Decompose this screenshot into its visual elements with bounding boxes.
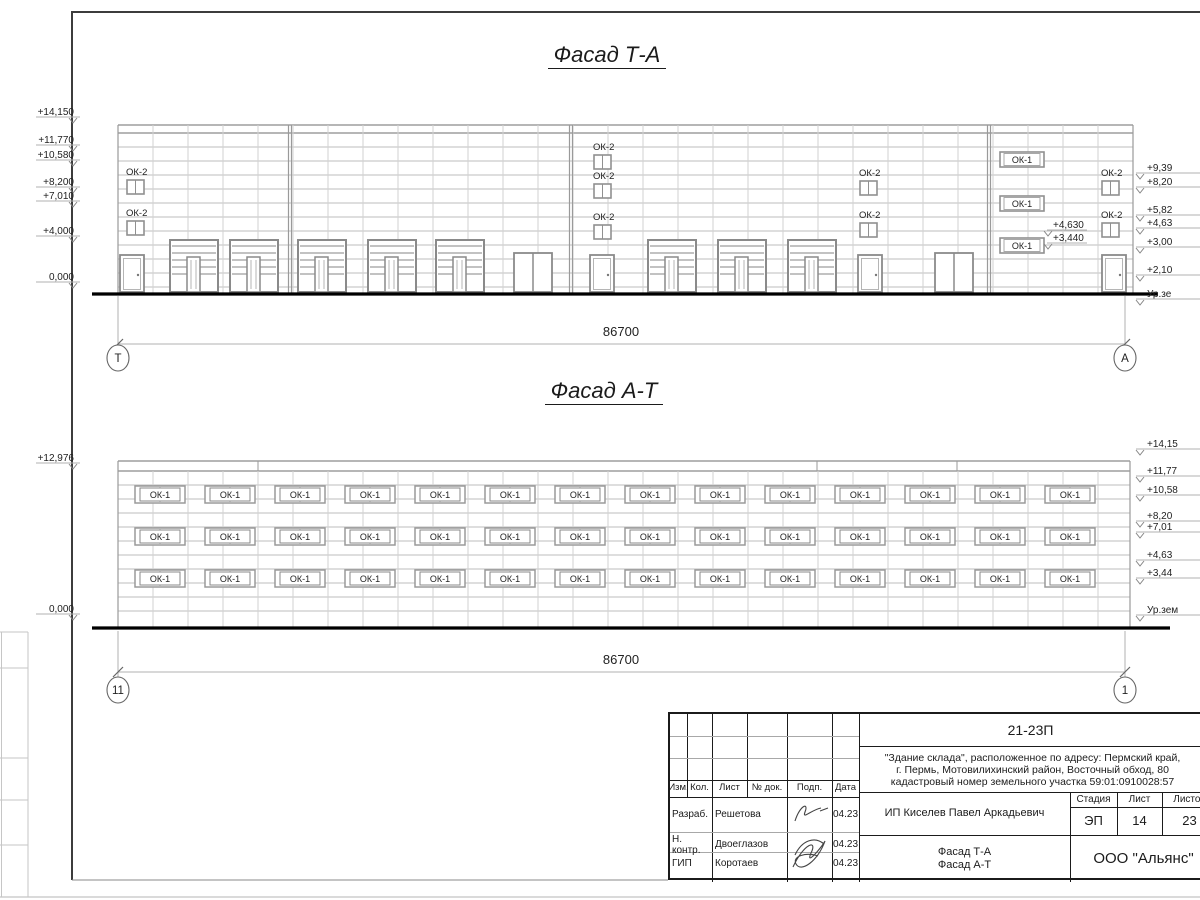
- tb-line: [859, 835, 1200, 836]
- svg-text:ОК-1: ОК-1: [290, 532, 310, 542]
- svg-text:ОК-1: ОК-1: [920, 574, 940, 584]
- svg-text:ОК-1: ОК-1: [290, 490, 310, 500]
- svg-text:ОК-1: ОК-1: [850, 490, 870, 500]
- title-block: 21-23П "Здание склада", расположенное по…: [668, 712, 1200, 880]
- window-ok1: ОК-1: [345, 570, 395, 587]
- svg-text:ОК-1: ОК-1: [640, 532, 660, 542]
- svg-text:0,000: 0,000: [49, 272, 74, 283]
- tb-header-podp: Подп.: [787, 781, 832, 796]
- tb-line: [712, 714, 713, 882]
- svg-text:ОК-1: ОК-1: [710, 532, 730, 542]
- svg-text:ОК-1: ОК-1: [500, 490, 520, 500]
- svg-text:ОК-1: ОК-1: [360, 490, 380, 500]
- tb-sheet-name-line2: Фасад А-Т: [938, 859, 991, 872]
- svg-text:Ур.зем: Ур.зем: [1147, 605, 1178, 616]
- tb-role-3: ГИП: [672, 857, 712, 871]
- window-ok1: ОК-1: [1000, 238, 1044, 253]
- svg-text:ОК-1: ОК-1: [920, 490, 940, 500]
- svg-text:ОК-1: ОК-1: [780, 574, 800, 584]
- tb-header-kol: Кол.: [687, 781, 712, 796]
- window-ok1: ОК-1: [135, 570, 185, 587]
- tb-role-2: Н. контр.: [672, 838, 712, 852]
- tb-header-izm: Изм.: [670, 781, 687, 796]
- window-ok1: ОК-1: [905, 486, 955, 503]
- svg-text:ОК-1: ОК-1: [220, 574, 240, 584]
- tb-organization: ООО "Альянс": [1070, 837, 1200, 880]
- window-ok2: ОК-2: [126, 167, 147, 194]
- svg-text:ОК-2: ОК-2: [593, 171, 614, 182]
- window-ok1: ОК-1: [275, 528, 325, 545]
- svg-text:+3,00: +3,00: [1147, 237, 1173, 248]
- window-ok1: ОК-1: [905, 570, 955, 587]
- signatures: [787, 797, 832, 882]
- svg-text:+3,44: +3,44: [1147, 568, 1173, 579]
- svg-text:+10,58: +10,58: [1147, 485, 1178, 496]
- svg-text:+10,580: +10,580: [38, 150, 75, 161]
- svg-text:ОК-1: ОК-1: [1012, 199, 1032, 209]
- svg-text:1: 1: [1122, 685, 1128, 697]
- window-ok1: ОК-1: [345, 528, 395, 545]
- facade-at-axes: 86700111: [107, 631, 1136, 703]
- tb-doc-number: 21-23П: [859, 716, 1200, 744]
- window-ok1: ОК-1: [135, 486, 185, 503]
- svg-text:ОК-1: ОК-1: [710, 490, 730, 500]
- window-ok1: ОК-1: [415, 570, 465, 587]
- svg-text:ОК-1: ОК-1: [360, 574, 380, 584]
- window-ok1: ОК-1: [1000, 152, 1044, 167]
- tb-client: ИП Киселев Павел Аркадьевич: [859, 794, 1070, 833]
- gate-door: [368, 240, 416, 292]
- window-ok1: ОК-1: [835, 528, 885, 545]
- tb-stage-value: ЭП: [1070, 809, 1117, 833]
- tb-name-1: Решетова: [715, 808, 785, 822]
- facade-ta-axes: 86700ТА: [107, 296, 1136, 371]
- gate-door: [230, 240, 278, 292]
- svg-text:ОК-1: ОК-1: [990, 574, 1010, 584]
- entry-door: [590, 255, 614, 292]
- tb-date-2: 04.23: [832, 838, 859, 852]
- window-ok1: ОК-1: [625, 570, 675, 587]
- svg-text:ОК-1: ОК-1: [360, 532, 380, 542]
- window-ok2: ОК-2: [1101, 210, 1122, 237]
- drawing-sheet: ОК-2ОК-2ОК-2ОК-2ОК-2ОК-2ОК-2ОК-2ОК-2ОК-1…: [0, 0, 1200, 900]
- svg-text:ОК-1: ОК-1: [780, 490, 800, 500]
- window-ok1: ОК-1: [765, 570, 815, 587]
- svg-text:ОК-1: ОК-1: [990, 532, 1010, 542]
- svg-text:ОК-1: ОК-1: [150, 490, 170, 500]
- svg-text:ОК-1: ОК-1: [1012, 155, 1032, 165]
- svg-text:ОК-1: ОК-1: [570, 532, 590, 542]
- svg-text:+7,01: +7,01: [1147, 522, 1173, 533]
- svg-text:+4,63: +4,63: [1147, 550, 1173, 561]
- window-ok1: ОК-1: [1000, 196, 1044, 211]
- window-ok1: ОК-1: [765, 486, 815, 503]
- gate-door: [298, 240, 346, 292]
- tb-project-description: "Здание склада", расположенное по адресу…: [863, 748, 1200, 792]
- facade-at-title: Фасад А-Т: [434, 378, 774, 404]
- gate-door: [648, 240, 696, 292]
- svg-text:ОК-2: ОК-2: [859, 168, 880, 179]
- window-ok2: ОК-2: [593, 212, 614, 239]
- window-ok1: ОК-1: [975, 528, 1025, 545]
- svg-text:ОК-2: ОК-2: [593, 212, 614, 223]
- svg-text:ОК-2: ОК-2: [126, 167, 147, 178]
- svg-text:ОК-1: ОК-1: [990, 490, 1010, 500]
- window-ok1: ОК-1: [415, 528, 465, 545]
- svg-text:ОК-1: ОК-1: [430, 574, 450, 584]
- window-ok1: ОК-1: [135, 528, 185, 545]
- svg-text:ОК-2: ОК-2: [859, 210, 880, 221]
- double-door: [514, 253, 552, 292]
- svg-text:ОК-2: ОК-2: [593, 142, 614, 153]
- tb-header-list: Лист: [712, 781, 747, 796]
- svg-text:+4,000: +4,000: [43, 226, 74, 237]
- svg-text:Ур.зе: Ур.зе: [1147, 289, 1172, 300]
- tb-line: [670, 736, 859, 737]
- entry-door: [120, 255, 144, 292]
- tb-date-3: 04.23: [832, 857, 859, 871]
- tb-name-2: Двоеглазов: [715, 838, 785, 852]
- entry-door: [858, 255, 882, 292]
- window-ok1: ОК-1: [835, 486, 885, 503]
- window-ok1: ОК-1: [1045, 570, 1095, 587]
- svg-text:ОК-1: ОК-1: [850, 532, 870, 542]
- svg-text:ОК-1: ОК-1: [850, 574, 870, 584]
- window-ok1: ОК-1: [975, 486, 1025, 503]
- svg-text:ОК-2: ОК-2: [1101, 168, 1122, 179]
- svg-text:ОК-1: ОК-1: [640, 574, 660, 584]
- svg-text:ОК-1: ОК-1: [220, 490, 240, 500]
- tb-date-1: 04.23: [832, 808, 859, 822]
- double-door: [935, 253, 973, 292]
- svg-text:ОК-2: ОК-2: [126, 208, 147, 219]
- facade-ta-title-text: Фасад Т-А: [548, 42, 667, 69]
- svg-text:Т: Т: [114, 353, 121, 365]
- svg-text:ОК-1: ОК-1: [920, 532, 940, 542]
- tb-desc-line1: "Здание склада", расположенное по адресу…: [885, 752, 1181, 764]
- svg-text:+4,63: +4,63: [1147, 218, 1173, 229]
- svg-text:ОК-1: ОК-1: [430, 532, 450, 542]
- svg-text:ОК-1: ОК-1: [150, 532, 170, 542]
- facade-at: ОК-1ОК-1ОК-1ОК-1ОК-1ОК-1ОК-1ОК-1ОК-1ОК-1…: [92, 461, 1170, 628]
- svg-text:+3,440: +3,440: [1053, 233, 1084, 244]
- gate-door: [788, 240, 836, 292]
- svg-text:ОК-1: ОК-1: [1060, 574, 1080, 584]
- facade-ta: ОК-2ОК-2ОК-2ОК-2ОК-2ОК-2ОК-2ОК-2ОК-2ОК-1…: [92, 125, 1158, 294]
- window-ok1: ОК-1: [205, 570, 255, 587]
- window-ok2: ОК-2: [593, 171, 614, 198]
- svg-text:+11,770: +11,770: [38, 135, 74, 146]
- window-ok2: ОК-2: [1101, 168, 1122, 195]
- window-ok1: ОК-1: [275, 570, 325, 587]
- svg-text:86700: 86700: [603, 324, 639, 339]
- svg-text:ОК-1: ОК-1: [290, 574, 310, 584]
- tb-desc-line3: кадастровый номер земельного участка 59:…: [891, 776, 1174, 788]
- window-ok1: ОК-1: [625, 528, 675, 545]
- tb-sheet-header: Лист: [1117, 793, 1162, 806]
- window-ok1: ОК-1: [975, 570, 1025, 587]
- window-ok1: ОК-1: [485, 528, 535, 545]
- svg-text:ОК-1: ОК-1: [500, 532, 520, 542]
- svg-text:+9,39: +9,39: [1147, 163, 1173, 174]
- window-ok1: ОК-1: [1045, 486, 1095, 503]
- window-ok1: ОК-1: [905, 528, 955, 545]
- svg-text:ОК-1: ОК-1: [430, 490, 450, 500]
- svg-text:+12,976: +12,976: [38, 453, 75, 464]
- window-ok1: ОК-1: [695, 570, 745, 587]
- window-ok1: ОК-1: [555, 528, 605, 545]
- svg-text:ОК-2: ОК-2: [1101, 210, 1122, 221]
- window-ok1: ОК-1: [695, 528, 745, 545]
- window-ok1: ОК-1: [695, 486, 745, 503]
- svg-text:ОК-1: ОК-1: [220, 532, 240, 542]
- tb-line: [859, 746, 1200, 747]
- facade-at-title-text: Фасад А-Т: [545, 378, 664, 405]
- svg-text:+7,010: +7,010: [43, 191, 74, 202]
- svg-text:ОК-1: ОК-1: [1012, 241, 1032, 251]
- window-ok2: ОК-2: [859, 168, 880, 195]
- svg-text:ОК-1: ОК-1: [570, 574, 590, 584]
- tb-name-3: Коротаев: [715, 857, 785, 871]
- svg-text:ОК-1: ОК-1: [710, 574, 730, 584]
- tb-sheets-total: 23: [1162, 809, 1200, 833]
- window-ok1: ОК-1: [555, 570, 605, 587]
- svg-text:+11,77: +11,77: [1147, 466, 1178, 477]
- svg-text:ОК-1: ОК-1: [570, 490, 590, 500]
- svg-text:ОК-1: ОК-1: [1060, 532, 1080, 542]
- tb-line: [1070, 807, 1200, 808]
- window-ok1: ОК-1: [1045, 528, 1095, 545]
- svg-text:ОК-1: ОК-1: [640, 490, 660, 500]
- facade-ta-title: Фасад Т-А: [437, 42, 777, 68]
- svg-text:+8,20: +8,20: [1147, 511, 1173, 522]
- window-ok1: ОК-1: [765, 528, 815, 545]
- window-ok1: ОК-1: [555, 486, 605, 503]
- window-ok2: ОК-2: [593, 142, 614, 169]
- tb-header-data: Дата: [832, 781, 859, 796]
- tb-sheet-number: 14: [1117, 809, 1162, 833]
- svg-text:+14,15: +14,15: [1147, 439, 1178, 450]
- window-ok1: ОК-1: [485, 486, 535, 503]
- window-ok1: ОК-1: [485, 570, 535, 587]
- tb-desc-line2: г. Пермь, Мотовилихинский район, Восточн…: [896, 764, 1169, 776]
- sheet-margin-boxes: [0, 632, 28, 897]
- svg-text:+4,630: +4,630: [1053, 220, 1084, 231]
- window-ok1: ОК-1: [415, 486, 465, 503]
- tb-sheets-header: Листов: [1162, 793, 1200, 806]
- window-ok1: ОК-1: [275, 486, 325, 503]
- gate-door: [436, 240, 484, 292]
- svg-text:ОК-1: ОК-1: [780, 532, 800, 542]
- svg-text:ОК-1: ОК-1: [1060, 490, 1080, 500]
- tb-line: [670, 758, 859, 759]
- svg-text:ОК-1: ОК-1: [500, 574, 520, 584]
- svg-text:11: 11: [112, 685, 124, 697]
- svg-text:0,000: 0,000: [49, 604, 74, 615]
- tb-stage-header: Стадия: [1070, 793, 1117, 806]
- tb-sheet-name-line1: Фасад Т-А: [938, 846, 991, 859]
- tb-header-doc: № док.: [747, 781, 787, 796]
- svg-text:+14,150: +14,150: [38, 107, 75, 118]
- window-ok1: ОК-1: [345, 486, 395, 503]
- svg-text:+2,10: +2,10: [1147, 265, 1173, 276]
- window-ok2: ОК-2: [859, 210, 880, 237]
- svg-text:+8,200: +8,200: [43, 177, 74, 188]
- window-ok1: ОК-1: [205, 486, 255, 503]
- window-ok1: ОК-1: [835, 570, 885, 587]
- window-ok2: ОК-2: [126, 208, 147, 235]
- svg-text:86700: 86700: [603, 652, 639, 667]
- tb-sheet-name: Фасад Т-А Фасад А-Т: [859, 837, 1070, 880]
- svg-text:+8,20: +8,20: [1147, 177, 1173, 188]
- entry-door: [1102, 255, 1126, 292]
- svg-text:А: А: [1121, 353, 1129, 365]
- svg-text:+5,82: +5,82: [1147, 205, 1173, 216]
- window-ok1: ОК-1: [625, 486, 675, 503]
- window-ok1: ОК-1: [205, 528, 255, 545]
- gate-door: [718, 240, 766, 292]
- gate-door: [170, 240, 218, 292]
- svg-text:ОК-1: ОК-1: [150, 574, 170, 584]
- tb-role-1: Разраб.: [672, 808, 712, 822]
